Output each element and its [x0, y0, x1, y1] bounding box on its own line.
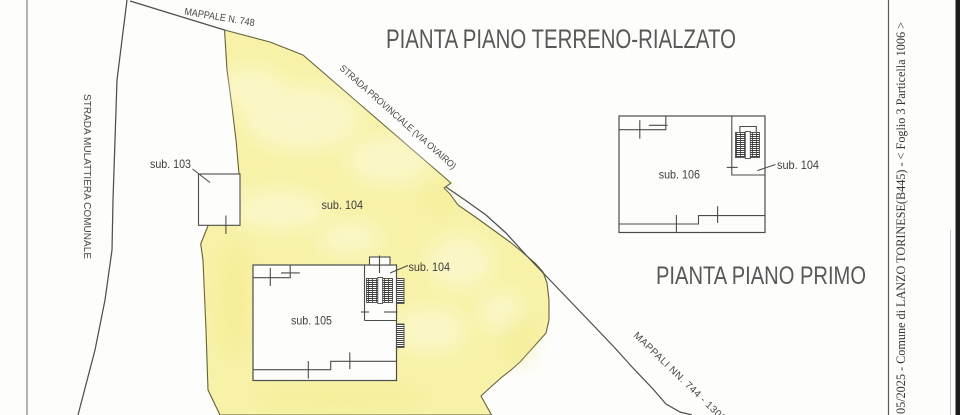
svg-text:05/2025 - Comune di LANZO TORI: 05/2025 - Comune di LANZO TORINESE(B445)…: [894, 22, 908, 414]
svg-text:sub. 105: sub. 105: [291, 314, 332, 328]
svg-text:PIANTA PIANO TERRENO-RIALZATO: PIANTA PIANO TERRENO-RIALZATO: [386, 24, 736, 54]
svg-text:STRADA MULATTIERA COMUNALE: STRADA MULATTIERA COMUNALE: [81, 94, 92, 259]
svg-text:sub. 104: sub. 104: [322, 198, 364, 212]
svg-text:sub. 106: sub. 106: [659, 168, 701, 182]
svg-text:sub. 103: sub. 103: [150, 157, 191, 171]
svg-text:sub. 104: sub. 104: [777, 158, 819, 172]
svg-text:PIANTA PIANO PRIMO: PIANTA PIANO PRIMO: [656, 262, 866, 290]
svg-text:sub. 104: sub. 104: [409, 260, 451, 274]
